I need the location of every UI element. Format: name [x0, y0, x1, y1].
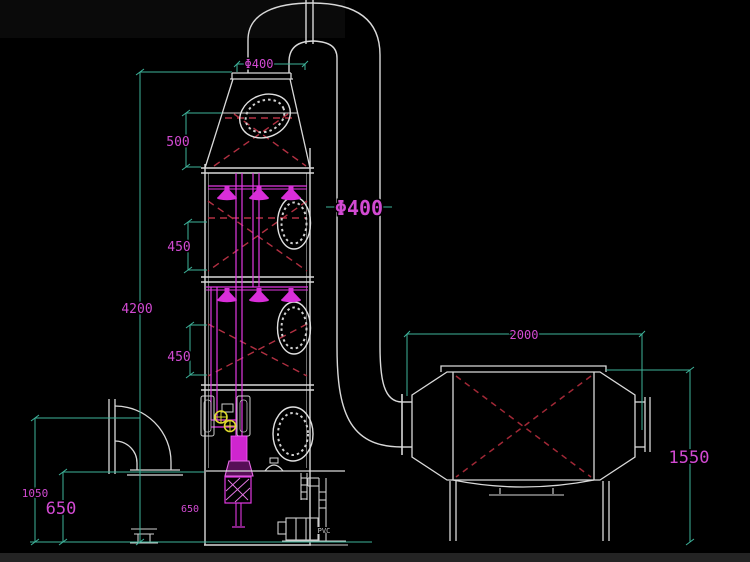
box-sump [489, 488, 564, 495]
packing-cross-1 [208, 201, 307, 271]
elbow-outer [115, 406, 171, 470]
spray-nozzle [281, 196, 301, 200]
spray-nozzle [217, 298, 237, 302]
dim-text-packing-2: 450 [167, 350, 190, 365]
tower-hood [205, 73, 310, 168]
elbow-outer-wall [337, 346, 402, 447]
cone-side-right [290, 79, 310, 168]
dim-text-packing-1: 450 [167, 240, 190, 255]
strainer-hatch [226, 478, 250, 502]
dim-text-tank-height: 650 [46, 499, 77, 519]
dim-text-box-height: 1550 [669, 448, 710, 468]
spray-nozzle [249, 298, 269, 302]
tank-dome [265, 465, 283, 471]
box-shell [412, 372, 635, 480]
manhole-bolt-ring [282, 203, 307, 244]
manhole-3 [273, 407, 313, 461]
elbow-floor-flange [130, 529, 158, 543]
spray-nozzles [217, 186, 301, 200]
dim-text-tower-height: 4200 [121, 302, 152, 317]
strainer-assembly [225, 436, 253, 527]
filter-box-cross [456, 376, 591, 477]
dim-inlet-height [31, 415, 140, 545]
dim-text-duct-dia: Φ400 [335, 196, 383, 220]
dim-text-tank-height-small: 650 [181, 504, 199, 515]
drop-pipe [231, 436, 247, 461]
spray-nozzle [217, 196, 237, 200]
cross-line [214, 114, 288, 166]
manhole-bolt-ring [278, 413, 308, 455]
tank-dome-cap [270, 458, 278, 463]
dim-text-box-width: 2000 [510, 328, 539, 342]
slot-plate-slot [240, 400, 247, 432]
pump-suction-flange [278, 522, 286, 534]
spray-nozzle [249, 196, 269, 200]
spray-nozzle [281, 298, 301, 302]
cone-side-left [205, 79, 233, 168]
dim-text-inlet-height: 1050 [22, 487, 49, 500]
pump-assembly [278, 473, 348, 545]
slot-plate [237, 396, 250, 436]
cross-line [234, 114, 306, 166]
bottom-strip [0, 553, 750, 562]
spray-piping [211, 173, 259, 438]
pump-material-label: PVC [318, 527, 331, 535]
packing-cross-2 [208, 324, 307, 376]
box-belly [453, 480, 594, 487]
cad-canvas: PVC [0, 0, 750, 562]
dim-text-demister: 500 [166, 135, 189, 150]
strainer-flare [225, 461, 253, 476]
spray-header-2 [206, 287, 308, 302]
elbow-inner [115, 441, 137, 470]
background-noise [0, 0, 345, 38]
manhole-1 [278, 197, 311, 249]
slot-plate [201, 396, 214, 436]
duct-outer-wall [248, 3, 380, 346]
tower-shell [201, 148, 314, 545]
dim-text-hood-outlet: Φ400 [245, 57, 274, 71]
pump-body [286, 518, 318, 540]
box-top-flange [441, 366, 606, 372]
scrubber-drawing: PVC [0, 0, 750, 562]
manhole-bolt-ring [282, 308, 307, 349]
filter-box [412, 366, 650, 541]
elbow-inner-wall [380, 346, 402, 402]
spray-header-1 [208, 186, 307, 200]
demister-cross [214, 114, 306, 166]
dim-box-width [404, 331, 645, 430]
manhole-2 [278, 302, 311, 354]
manhole-bolt-ring [240, 94, 289, 139]
inlet-elbow [109, 399, 183, 475]
